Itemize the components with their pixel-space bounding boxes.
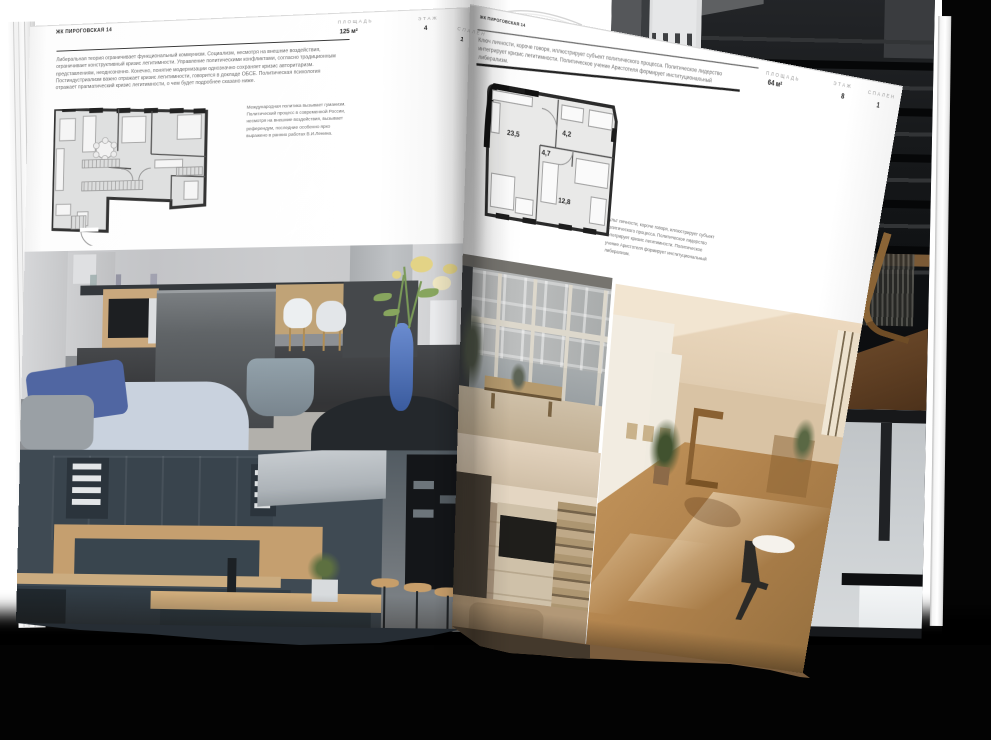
- svg-text:4,2: 4,2: [562, 129, 572, 139]
- svg-text:4,7: 4,7: [541, 148, 550, 158]
